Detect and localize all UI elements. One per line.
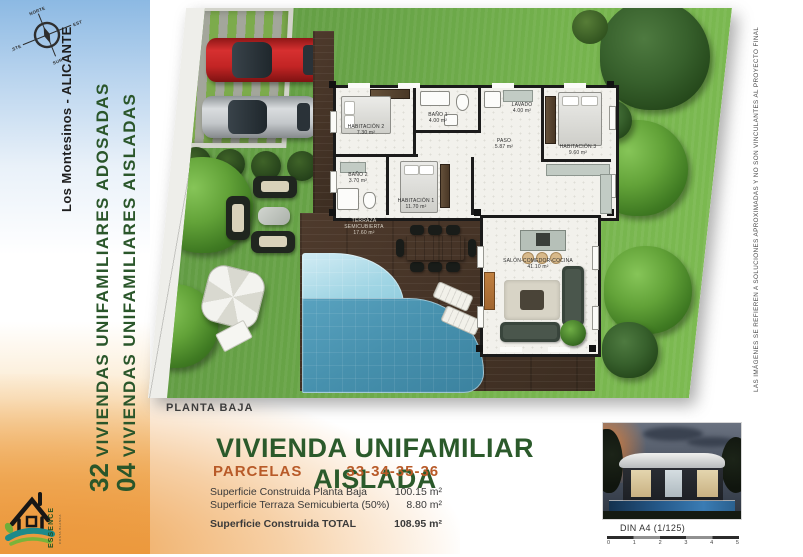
car-windshield [232,42,272,77]
partition-wall [386,154,389,215]
parcels-numbers: 33-34-35-36 [346,463,439,480]
project-count-04: 04 [111,463,141,492]
window [500,347,522,352]
window [492,83,514,88]
partition-wall [336,154,418,157]
partition-wall [478,88,481,132]
outdoor-sofa [251,231,295,253]
compass-west-label: OESTE [12,44,22,55]
compass-north-label: NORTE [29,5,47,16]
partition-wall [413,88,416,156]
window [592,246,599,270]
dining-chair [410,225,424,235]
room-label-lavado: LAVADO4.00 m² [500,102,544,114]
lit-window [665,470,682,497]
scale-bar-segments [607,536,739,539]
window [398,83,420,88]
room-label-terraza: TERRAZA SEMICUBIERTA17.60 m² [336,218,392,236]
villa-roof [619,453,725,468]
kitchen-counter [600,174,612,214]
partition-wall [541,159,611,162]
plan-sheet-page: { "colors": { "title_green": "#2b5a2b", … [0,0,803,554]
room-label-bano-1: BAÑO 14.00 m² [418,112,458,124]
tv-sideboard [484,272,495,310]
essence-logo-name: ESSENCE [48,507,55,548]
cooktop [536,233,550,246]
sofa [562,266,584,326]
room-label-paso: PASO5.87 m² [484,138,524,150]
wall-pillar [607,81,614,88]
project-line-aisladas: 04VIVIENDAS UNIFAMILIARES AISLADAS [111,93,142,492]
toilet [363,192,376,209]
plan-paper: HABITACIÓN 27.30 m² BAÑO 14.00 m² LAVADO… [148,6,748,402]
dining-chair [446,225,460,235]
window [609,106,616,130]
room-label-habitacion-3: HABITACIÓN 39.60 m² [550,144,606,156]
car-rear-window [297,103,310,132]
dining-bench [468,239,476,257]
room-label-habitacion-2: HABITACIÓN 27.30 m² [336,124,396,136]
bush [572,10,608,44]
wall-pillar [476,345,483,352]
room-label-bano-2: BAÑO 23.70 m² [336,172,380,184]
silver-car [202,96,318,138]
lit-window [697,470,718,497]
ground-shadow [603,511,741,519]
image-disclaimer: LAS IMÁGENES SE REFIEREN A SOLUCIONES AP… [753,27,760,392]
bed [558,92,602,146]
tree [602,322,658,378]
scale-bar: 0 1 2 3 4 5 [607,536,739,546]
lit-window [631,470,651,497]
outdoor-dining-table [406,236,464,260]
car-windshield [228,100,267,134]
wall-pillar [329,81,336,88]
scale-label: DIN A4 (1/125) [620,523,685,533]
outdoor-table [258,207,290,225]
essence-logo: ESSENCE COSTA BLANCA [2,486,66,552]
surface-row: Superficie Terraza Semicubierta (50%) 8.… [210,499,442,512]
wall-pillar [474,209,481,216]
partition-wall [541,88,544,162]
window [477,306,484,328]
window [564,83,586,88]
dining-chair [446,262,460,272]
dining-chair [410,262,424,272]
parcels-label: PARCELAS [213,463,302,480]
partition-wall [471,157,474,215]
window [477,246,484,268]
project-label-adosadas: VIVIENDAS UNIFAMILIARES ADOSADAS [93,82,112,457]
dining-chair [428,225,442,235]
essence-logo-subtitle: COSTA BLANCA [58,514,62,544]
floor-label: PLANTA BAJA [166,402,253,414]
toilet [456,94,469,111]
site-plan: HABITACIÓN 27.30 m² BAÑO 14.00 m² LAVADO… [148,6,748,402]
window [592,306,599,330]
dining-chair [428,262,442,272]
dining-bench [396,239,404,257]
outdoor-sofa [226,196,250,240]
location-title: Los Montesinos - ALICANTE [59,26,74,212]
room-label-salon: SALÓN-COMEDOR-COCINA41.10 m² [498,258,578,270]
shower [337,188,359,210]
red-car [206,38,324,82]
laundry-counter [503,90,533,102]
essence-logo-icon [2,486,66,552]
window [548,347,570,352]
surface-row: Superficie Construida Planta Baja 100.15… [210,486,442,499]
sofa [500,322,560,342]
coffee-table [520,290,544,310]
room-label-habitacion-1: HABITACIÓN 111.70 m² [390,198,442,210]
tree [604,246,692,334]
wall-pillar [329,209,336,216]
villa-render-image [603,423,741,519]
outdoor-sofa [253,176,297,198]
bathtub [420,91,450,106]
surface-table: Superficie Construida Planta Baja 100.15… [210,486,442,531]
window [348,83,370,88]
partition-wall [415,130,481,133]
surface-total-row: Superficie Construida TOTAL 108.95 m² [210,518,442,531]
project-count-32: 32 [84,463,114,492]
plot-grass: HABITACIÓN 27.30 m² BAÑO 14.00 m² LAVADO… [148,6,748,402]
parcels-line: PARCELAS 33-34-35-36 [213,463,439,480]
washing-machine [484,91,501,108]
wall-pillar [589,345,596,352]
project-label-aisladas: VIVIENDAS UNIFAMILIARES AISLADAS [120,93,139,457]
indoor-plant [560,320,586,346]
wardrobe [545,96,556,144]
